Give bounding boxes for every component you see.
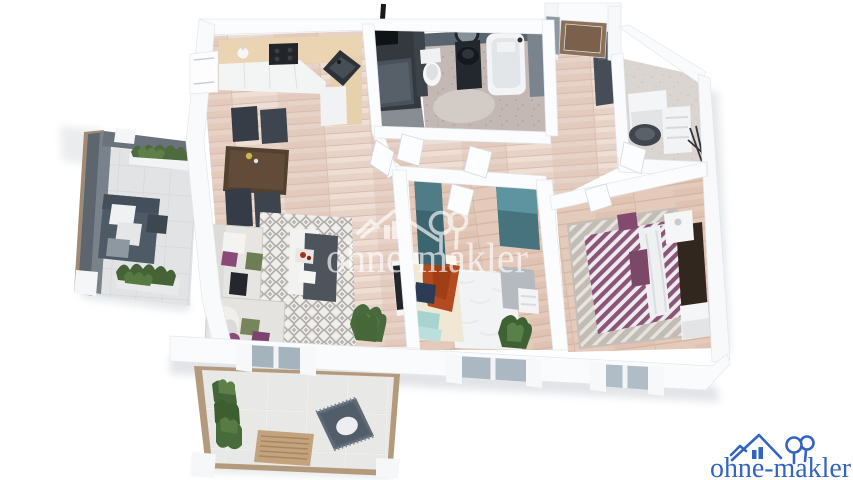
svg-text:ohne-makler: ohne-makler (710, 453, 852, 480)
svg-text:ohne-makler: ohne-makler (326, 236, 528, 282)
